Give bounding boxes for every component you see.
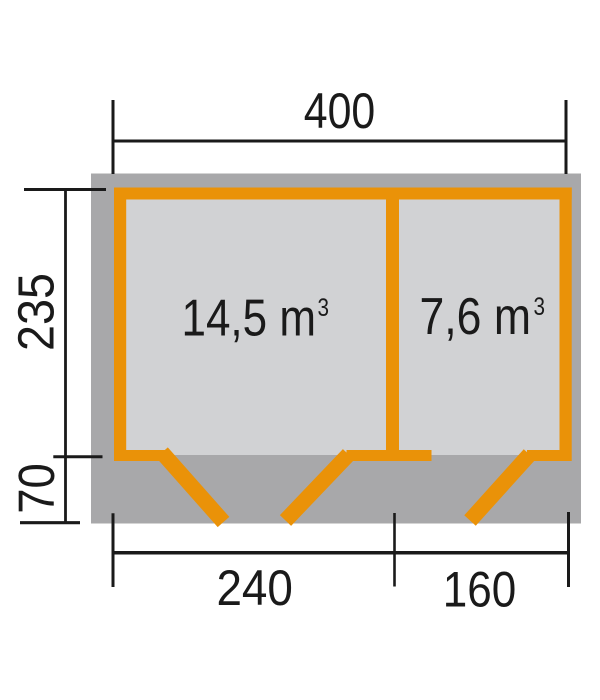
svg-text:240: 240 <box>216 560 293 616</box>
svg-text:3: 3 <box>318 294 330 322</box>
svg-text:7,6 m: 7,6 m <box>420 287 532 345</box>
svg-text:160: 160 <box>443 562 517 618</box>
svg-text:70: 70 <box>8 463 65 514</box>
svg-text:235: 235 <box>8 273 65 351</box>
svg-text:3: 3 <box>534 293 546 321</box>
svg-text:400: 400 <box>304 83 376 139</box>
svg-text:14,5 m: 14,5 m <box>182 289 317 347</box>
